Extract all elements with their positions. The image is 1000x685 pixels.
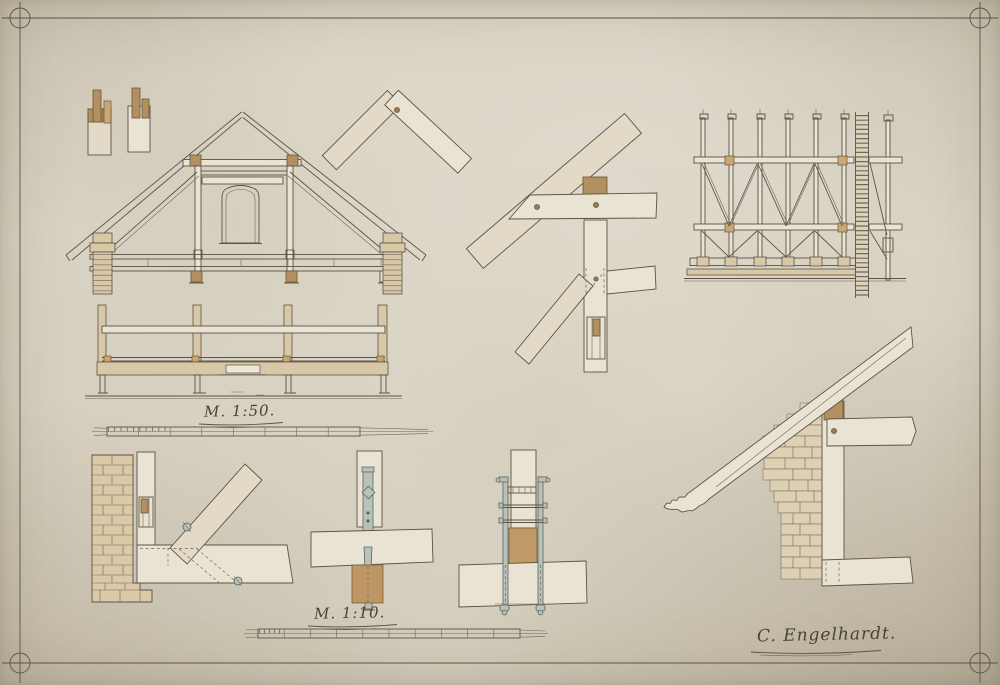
drawing-sheet: M. 1:50. M. 1:10. C. Engelhardt. xyxy=(0,0,1000,685)
roof-truss-section xyxy=(66,112,426,294)
scale-label-main: M. 1:50. xyxy=(204,401,276,420)
ladder-strip xyxy=(856,112,869,298)
wall-strut-detail xyxy=(92,452,293,602)
stirrup-anchor-detail xyxy=(459,450,587,615)
signature: C. Engelhardt. xyxy=(757,624,897,647)
ridge-joint xyxy=(322,90,471,173)
bolt-anchor-detail xyxy=(311,451,433,610)
purlin-post-joint xyxy=(466,114,657,372)
eaves-cornice-detail xyxy=(664,327,916,586)
longitudinal-section xyxy=(85,305,402,399)
tenon-details xyxy=(88,88,150,155)
scale-bar-detail xyxy=(244,629,548,638)
scale-label-detail: M. 1:10. xyxy=(314,603,386,622)
drawing-canvas xyxy=(0,0,1000,685)
scale-bar-main xyxy=(92,427,433,436)
roof-framing-elevation xyxy=(684,109,906,298)
